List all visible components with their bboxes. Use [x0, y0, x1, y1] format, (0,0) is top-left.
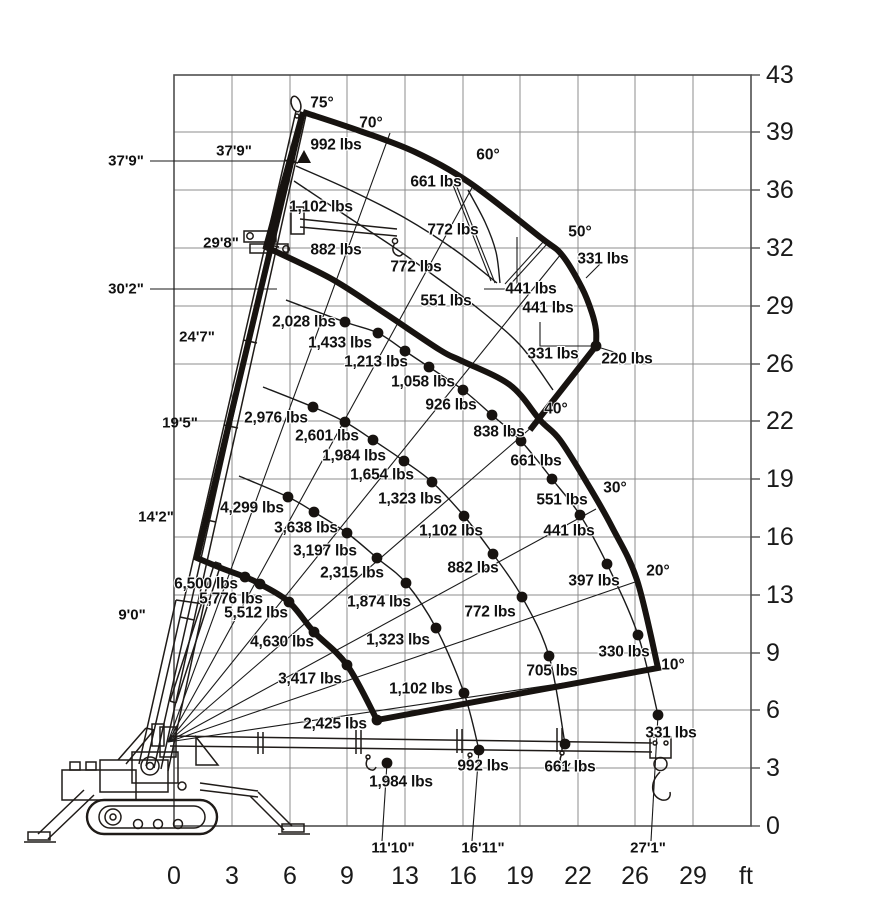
x-axis-label: 6	[283, 862, 297, 890]
capacity-label: 220 lbs	[601, 351, 652, 368]
capacity-dot	[560, 739, 571, 750]
capacity-dot	[368, 435, 379, 446]
capacity-label: 2,028 lbs	[272, 314, 336, 331]
capacity-label: 705 lbs	[526, 663, 577, 680]
capacity-dot	[653, 710, 664, 721]
capacity-label: 331 lbs	[645, 725, 696, 742]
ground-radius-label: 16'11"	[461, 840, 504, 857]
x-axis-label: 3	[225, 862, 239, 890]
capacity-label: 551 lbs	[536, 492, 587, 509]
angle-label: 50°	[568, 224, 591, 241]
capacity-label: 4,630 lbs	[250, 634, 314, 651]
capacity-label: 4,299 lbs	[220, 500, 284, 517]
height-mark-label: 14'2"	[138, 509, 174, 526]
y-axis-label: 22	[766, 407, 794, 435]
capacity-label: 661 lbs	[410, 174, 461, 191]
capacity-label: 992 lbs	[310, 137, 361, 154]
ground-radius-label: 27'1"	[630, 840, 666, 857]
capacity-label: 5,512 lbs	[224, 605, 288, 622]
capacity-dot	[382, 758, 393, 769]
capacity-label: 882 lbs	[310, 242, 361, 259]
angle-label: 10°	[661, 657, 684, 674]
y-axis-label: 3	[766, 754, 780, 782]
capacity-label: 838 lbs	[473, 424, 524, 441]
crane-carrier	[62, 724, 217, 834]
crane-load-chart: 992 lbs661 lbs1,102 lbs772 lbs882 lbs772…	[0, 0, 883, 914]
capacity-dot	[633, 630, 644, 641]
capacity-label: 1,323 lbs	[366, 632, 430, 649]
capacity-dot	[547, 474, 558, 485]
capacity-dot	[591, 341, 602, 352]
y-axis-label: 26	[766, 350, 794, 378]
capacity-label: 1,433 lbs	[308, 335, 372, 352]
x-axis-label: 22	[564, 862, 592, 890]
capacity-dot	[474, 745, 485, 756]
x-axis-label: 0	[167, 862, 181, 890]
capacity-dot	[255, 579, 266, 590]
y-axis-label: 13	[766, 581, 794, 609]
capacity-label: 992 lbs	[457, 758, 508, 775]
capacity-dot	[488, 549, 499, 560]
ground-radius-label: 11'10"	[371, 840, 414, 857]
angle-label: 60°	[476, 147, 499, 164]
capacity-label: 926 lbs	[425, 397, 476, 414]
y-axis-label: 29	[766, 292, 794, 320]
y-axis-label: 32	[766, 234, 794, 262]
capacity-dot	[372, 715, 383, 726]
y-axis-label: 16	[766, 523, 794, 551]
capacity-label: 397 lbs	[568, 573, 619, 590]
x-axis-label: 26	[621, 862, 649, 890]
capacity-label: 441 lbs	[543, 523, 594, 540]
angle-label: 40°	[544, 401, 567, 418]
load-chart-page: 992 lbs661 lbs1,102 lbs772 lbs882 lbs772…	[0, 0, 883, 914]
height-mark-label: 24'7"	[179, 329, 215, 346]
capacity-label: 331 lbs	[577, 251, 628, 268]
capacity-dot	[373, 328, 384, 339]
capacity-dot	[372, 553, 383, 564]
capacity-label: 441 lbs	[505, 281, 556, 298]
angle-label: 75°	[310, 95, 333, 112]
capacity-dot	[427, 477, 438, 488]
capacity-dot	[517, 592, 528, 603]
capacity-label: 772 lbs	[427, 222, 478, 239]
capacity-label: 551 lbs	[420, 293, 471, 310]
capacity-dot	[399, 456, 410, 467]
capacity-dot	[308, 402, 319, 413]
x-axis-label: 19	[506, 862, 534, 890]
y-axis-label: 0	[766, 812, 780, 840]
leader-line	[540, 322, 593, 346]
capacity-label: 772 lbs	[390, 259, 441, 276]
angle-label: 30°	[603, 480, 626, 497]
capacity-dot	[459, 511, 470, 522]
capacity-dot	[458, 385, 469, 396]
capacity-label: 1,213 lbs	[344, 354, 408, 371]
capacity-label: 3,638 lbs	[274, 520, 338, 537]
capacity-label: 3,197 lbs	[293, 543, 357, 560]
capacity-label: 1,654 lbs	[350, 467, 414, 484]
capacity-triangle-marker	[297, 150, 311, 163]
capacity-dot	[544, 651, 555, 662]
capacity-label: 772 lbs	[464, 604, 515, 621]
capacity-dot	[309, 507, 320, 518]
capacity-label: 1,323 lbs	[378, 491, 442, 508]
capacity-label: 441 lbs	[522, 300, 573, 317]
capacity-dot	[459, 688, 470, 699]
capacity-label: 1,984 lbs	[322, 448, 386, 465]
height-mark-label: 37'9"	[108, 153, 144, 170]
y-axis-label: 6	[766, 696, 780, 724]
capacity-label: 661 lbs	[544, 759, 595, 776]
capacity-label: 1,058 lbs	[391, 374, 455, 391]
height-mark-label: 9'0"	[118, 607, 145, 624]
y-axis-label: 9	[766, 639, 780, 667]
capacity-dot	[342, 528, 353, 539]
capacity-label: 330 lbs	[598, 644, 649, 661]
main-hook-block-icon	[650, 737, 671, 800]
capacity-dot	[487, 410, 498, 421]
capacity-dot	[602, 559, 613, 570]
y-axis-label: 43	[766, 61, 794, 89]
capacity-label: 2,976 lbs	[244, 410, 308, 427]
capacity-label: 1,102 lbs	[419, 523, 483, 540]
capacity-dot	[401, 578, 412, 589]
capacity-dot	[424, 362, 435, 373]
capacity-dot	[340, 317, 351, 328]
capacity-label: 882 lbs	[447, 560, 498, 577]
capacity-label: 2,315 lbs	[320, 565, 384, 582]
capacity-label: 1,874 lbs	[347, 594, 411, 611]
y-axis-label: 19	[766, 465, 794, 493]
x-axis-label: 29	[679, 862, 707, 890]
capacity-label: 661 lbs	[510, 453, 561, 470]
capacity-label: 331 lbs	[527, 346, 578, 363]
x-axis-label: 16	[449, 862, 477, 890]
capacity-dot	[575, 510, 586, 521]
leader-line	[505, 241, 544, 284]
y-axis-label: 36	[766, 176, 794, 204]
capacity-dot	[240, 572, 251, 583]
x-axis-unit: ft	[739, 862, 753, 890]
capacity-dot	[431, 623, 442, 634]
capacity-label: 1,102 lbs	[389, 681, 453, 698]
capacity-label: 2,425 lbs	[303, 716, 367, 733]
capacity-dot	[342, 660, 353, 671]
boom-length-label: 29'8"	[203, 235, 239, 252]
capacity-dot	[340, 417, 351, 428]
capacity-label: 1,984 lbs	[369, 774, 433, 791]
height-mark-label: 19'5"	[162, 415, 198, 432]
capacity-label: 3,417 lbs	[278, 671, 342, 688]
capacity-label: 2,601 lbs	[295, 428, 359, 445]
angle-label: 20°	[646, 563, 669, 580]
angle-label: 70°	[359, 115, 382, 132]
y-axis-label: 39	[766, 118, 794, 146]
height-mark-label: 30'2"	[108, 281, 144, 298]
boom-length-label: 37'9"	[216, 143, 252, 160]
x-axis-label: 9	[340, 862, 354, 890]
x-axis-label: 13	[391, 862, 419, 890]
capacity-dot	[283, 492, 294, 503]
capacity-label: 1,102 lbs	[289, 199, 353, 216]
